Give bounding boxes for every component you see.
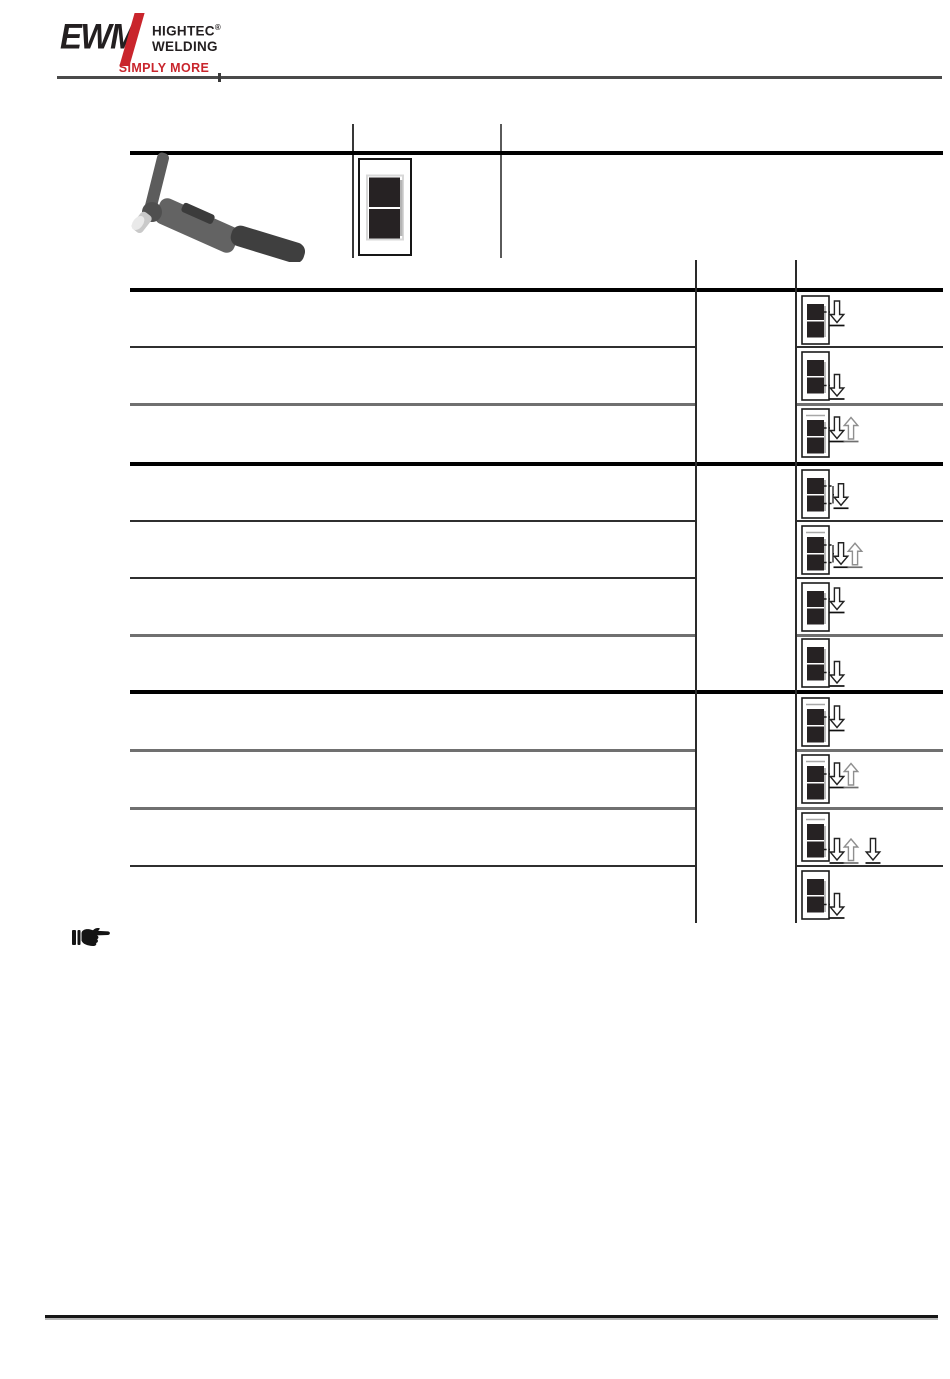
display-and-trigger-icon <box>797 694 943 750</box>
operation-table-body <box>0 0 950 1379</box>
display-and-trigger-icon <box>797 578 943 635</box>
description-cell <box>130 866 695 923</box>
manual-page: EWM HIGHTEC® WELDING SIMPLY MORE <box>0 0 950 1379</box>
display-and-trigger-icon <box>797 466 943 521</box>
display-and-trigger-icon <box>797 866 943 923</box>
description-cell <box>130 635 695 690</box>
description-cell <box>130 521 695 578</box>
description-cell <box>130 404 695 462</box>
pointing-hand-icon <box>70 921 112 951</box>
display-and-trigger-icon <box>797 292 943 347</box>
footer-rule <box>45 1315 938 1318</box>
description-cell <box>130 808 695 866</box>
description-cell <box>130 750 695 808</box>
display-and-trigger-icon <box>797 635 943 690</box>
description-cell <box>130 466 695 521</box>
description-cell <box>130 578 695 635</box>
description-cell <box>130 694 695 750</box>
display-and-trigger-icon <box>797 808 943 866</box>
display-and-trigger-icon <box>797 521 943 578</box>
display-and-trigger-icon <box>797 347 943 404</box>
description-cell <box>130 347 695 404</box>
display-and-trigger-icon <box>797 404 943 462</box>
display-and-trigger-icon <box>797 750 943 808</box>
description-cell <box>130 292 695 347</box>
